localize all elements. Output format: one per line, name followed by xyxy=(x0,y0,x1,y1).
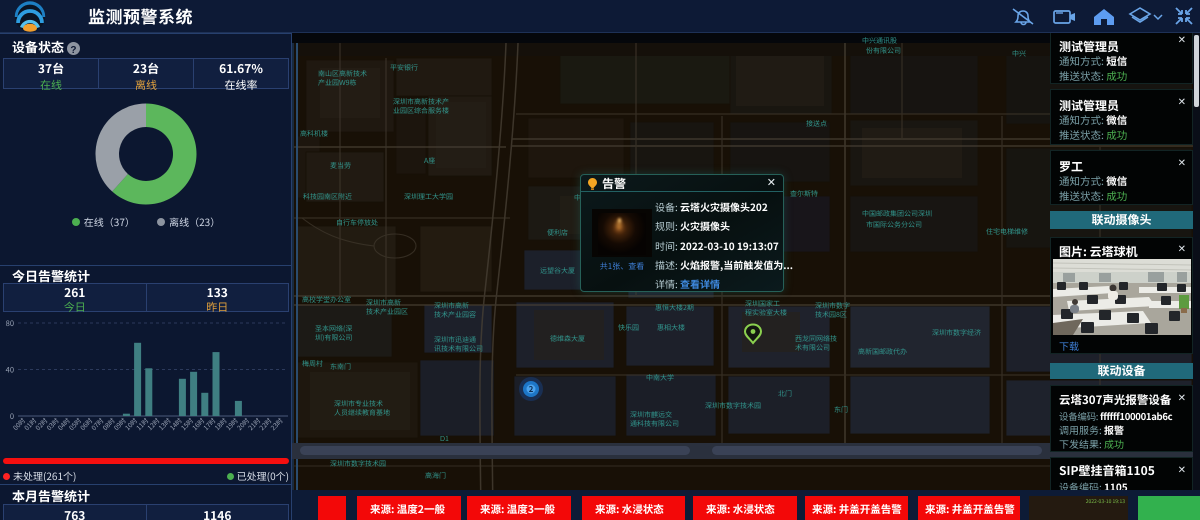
svg-text:人员继续教育基地: 人员继续教育基地 xyxy=(334,408,390,418)
svg-text:0: 0 xyxy=(10,411,14,422)
svg-text:A座: A座 xyxy=(424,156,435,166)
svg-text:中兴: 中兴 xyxy=(1012,49,1026,59)
svg-text:程实验室大楼: 程实验室大楼 xyxy=(745,308,787,318)
svg-text:2: 2 xyxy=(529,384,534,395)
svg-text:惠恒大楼2期: 惠恒大楼2期 xyxy=(655,303,694,313)
svg-text:深圳市数字经济: 深圳市数字经济 xyxy=(932,328,981,338)
svg-text:深圳市数字技术园: 深圳市数字技术园 xyxy=(705,401,761,411)
svg-text:高海门: 高海门 xyxy=(425,471,446,481)
svg-text:D1: D1 xyxy=(440,434,449,444)
svg-text:通科技有限公司: 通科技有限公司 xyxy=(630,419,679,429)
svg-text:麦当劳: 麦当劳 xyxy=(330,161,351,171)
svg-text:份有限公司: 份有限公司 xyxy=(866,46,901,56)
svg-text:高新国邮政代办: 高新国邮政代办 xyxy=(858,347,907,357)
svg-text:东门: 东门 xyxy=(834,405,848,415)
svg-text:23时: 23时 xyxy=(268,415,285,432)
svg-text:平安银行: 平安银行 xyxy=(390,63,418,73)
svg-text:深圳理工大学园: 深圳理工大学园 xyxy=(404,192,453,202)
svg-text:术有限公司: 术有限公司 xyxy=(795,343,830,353)
svg-text:中南大学: 中南大学 xyxy=(646,373,674,383)
svg-text:讯技术有限公司: 讯技术有限公司 xyxy=(434,344,483,354)
svg-text:东南门: 东南门 xyxy=(330,362,351,372)
svg-text:业园区综合服务楼: 业园区综合服务楼 xyxy=(393,106,449,116)
svg-text:技术产业园容: 技术产业园容 xyxy=(434,310,476,320)
svg-text:高科机楼: 高科机楼 xyxy=(300,129,328,139)
svg-text:快乐园: 快乐园 xyxy=(618,323,639,333)
svg-text:住宅电梯维修: 住宅电梯维修 xyxy=(986,227,1028,237)
svg-text:高校学堂办公室: 高校学堂办公室 xyxy=(302,295,351,305)
svg-text:科技园南区附近: 科技园南区附近 xyxy=(303,192,352,202)
svg-text:市国际公务分公司: 市国际公务分公司 xyxy=(866,220,922,230)
svg-text:40: 40 xyxy=(6,365,14,376)
svg-text:圳)有限公司: 圳)有限公司 xyxy=(315,333,352,343)
svg-text:惠相大楼: 惠相大楼 xyxy=(657,323,685,333)
svg-text:自行车停放处: 自行车停放处 xyxy=(336,218,378,228)
svg-text:技术产业园区: 技术产业园区 xyxy=(366,307,408,317)
svg-text:技术园8区: 技术园8区 xyxy=(815,310,847,320)
svg-text:便利店: 便利店 xyxy=(547,228,568,238)
svg-text:德维森大厦: 德维森大厦 xyxy=(550,334,585,344)
svg-text:北门: 北门 xyxy=(778,389,792,399)
svg-text:产业园W9栋: 产业园W9栋 xyxy=(318,78,357,88)
svg-text:中国邮政集团公司深圳: 中国邮政集团公司深圳 xyxy=(862,209,932,219)
svg-text:查尔斯特: 查尔斯特 xyxy=(790,189,818,199)
svg-text:中兴通讯股: 中兴通讯股 xyxy=(862,36,897,46)
svg-text:远望谷大厦: 远望谷大厦 xyxy=(540,266,575,276)
svg-text:80: 80 xyxy=(6,318,14,329)
svg-text:深圳市数字技术园: 深圳市数字技术园 xyxy=(330,459,386,469)
svg-text:接送点: 接送点 xyxy=(806,119,827,129)
svg-text:梅周村: 梅周村 xyxy=(302,359,323,369)
